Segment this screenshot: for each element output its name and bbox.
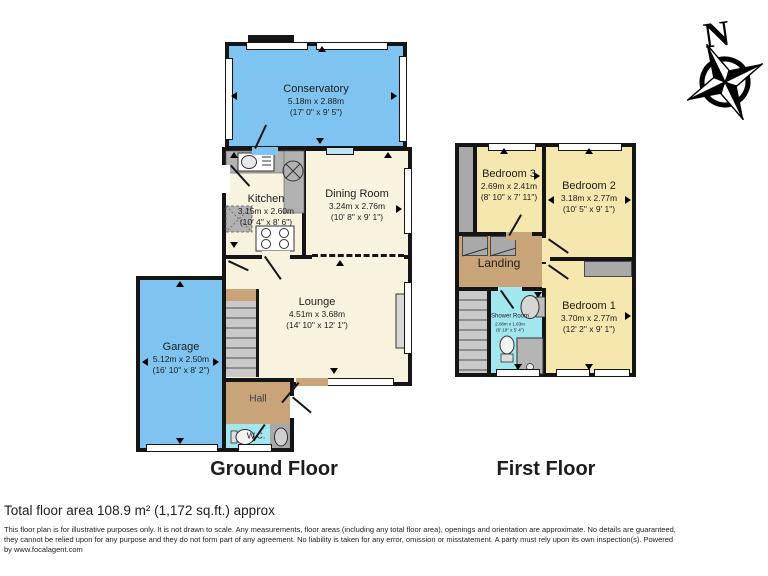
wall-marker-icon [230, 152, 238, 158]
window [496, 369, 540, 377]
eaves-store-block [459, 147, 474, 232]
wall-marker-icon [230, 242, 238, 248]
room-name: Bedroom 1 [561, 299, 617, 313]
window [404, 168, 412, 234]
disclaimer-line: This floor plan is for illustrative purp… [4, 525, 676, 535]
landing-cupboard [462, 236, 488, 256]
room-name: Lounge [286, 295, 348, 309]
window [399, 56, 407, 142]
room-name: Bedroom 2 [561, 179, 617, 193]
wall-marker-icon [625, 196, 631, 204]
room-dims-imperial: (10' 4" x 8' 6") [238, 217, 294, 228]
wall-marker-icon [625, 312, 631, 320]
ground-floor-title: Ground Floor [210, 458, 338, 481]
wall-marker-icon [548, 196, 554, 204]
room-name: Bedroom 3 [481, 167, 537, 181]
wall-marker-icon [213, 358, 219, 366]
room-dims-imperial: (16' 10" x 8' 2") [152, 365, 209, 376]
room-dims-imperial: (8' 10" x 7' 11") [481, 192, 537, 203]
label-lounge: Lounge 4.51m x 3.68m (14' 10" x 12' 1") [286, 295, 348, 331]
room-dims-metric: 2.08m x 1.63m [491, 321, 529, 327]
room-name: Shower Room [491, 313, 529, 321]
room-dims-imperial: (12' 2" x 9' 1") [561, 324, 617, 335]
wall-marker-icon [500, 148, 508, 154]
stairs-first [459, 291, 487, 373]
window [238, 444, 272, 452]
wall-marker-icon [318, 46, 326, 52]
room-dims-metric: 5.18m x 2.88m [283, 96, 348, 107]
wall-marker-icon [316, 138, 324, 144]
window [556, 369, 590, 377]
label-garage: Garage 5.12m x 2.50m (16' 10" x 8' 2") [152, 340, 209, 376]
room-name: Conservatory [283, 82, 348, 96]
first-floor-title: First Floor [497, 458, 596, 481]
total-floor-area-text: Total floor area 108.9 m² (1,172 sq.ft.)… [4, 503, 275, 518]
room-dims-imperial: (17' 0" x 9' 5") [283, 107, 348, 118]
compass-rose-icon: N [682, 12, 766, 120]
room-dims-imperial: (6' 10" x 5' 4") [491, 327, 529, 333]
room-name: Dining Room [325, 187, 389, 201]
room-dims-metric: 3.70m x 2.77m [561, 313, 617, 324]
room-dims-imperial: (10' 5" x 9' 1") [561, 204, 617, 215]
label-hall: Hall [249, 393, 266, 406]
dashed-opening-line [312, 254, 404, 257]
label-shower-room: Shower Room 2.08m x 1.63m (6' 10" x 5' 4… [491, 313, 529, 332]
wc-vanity-block [270, 424, 290, 448]
room-dims-imperial: (10' 8" x 9' 1") [325, 212, 389, 223]
wall-marker-icon [142, 358, 148, 366]
wall-marker-icon [585, 364, 593, 370]
garage-door [146, 444, 218, 452]
bedroom1-wardrobe [584, 261, 632, 277]
wall-marker-icon [534, 292, 542, 298]
wall-marker-icon [330, 368, 338, 374]
room-name: Kitchen [238, 192, 294, 206]
room-name: Garage [152, 340, 209, 354]
window [316, 42, 388, 50]
room-dims-metric: 3.18m x 2.77m [561, 193, 617, 204]
wall-marker-icon [176, 281, 184, 287]
wall-marker-icon [176, 438, 184, 444]
wall-marker-icon [514, 364, 522, 370]
disclaimer-line: by www.focalagent.com [4, 545, 83, 555]
label-conservatory: Conservatory 5.18m x 2.88m (17' 0" x 9' … [283, 82, 348, 118]
label-landing: Landing [478, 256, 521, 272]
wall-marker-icon [384, 152, 392, 158]
stairs-ground-landing-cap [226, 289, 256, 301]
wall-marker-icon [396, 205, 402, 213]
wall-marker-icon [585, 148, 593, 154]
room-dims-metric: 3.24m x 2.76m [325, 201, 389, 212]
label-wc: W.C. [247, 430, 265, 441]
door-opening [542, 264, 550, 288]
wall-marker-icon [231, 92, 237, 100]
label-bedroom1: Bedroom 1 3.70m x 2.77m (12' 2" x 9' 1") [561, 299, 617, 335]
wall-marker-icon [336, 260, 344, 266]
compass-north-label: N [701, 13, 732, 56]
label-kitchen: Kitchen 3.15m x 2.60m (10' 4" x 8' 6") [238, 192, 294, 228]
door-opening [296, 378, 328, 386]
room-dims-imperial: (14' 10" x 12' 1") [286, 320, 348, 331]
door-opening [222, 165, 230, 193]
label-dining-room: Dining Room 3.24m x 2.76m (10' 8" x 9' 1… [325, 187, 389, 223]
window [488, 143, 536, 151]
door-opening [542, 238, 550, 262]
label-bedroom2: Bedroom 2 3.18m x 2.77m (10' 5" x 9' 1") [561, 179, 617, 215]
window [246, 42, 308, 50]
room-dims-metric: 3.15m x 2.60m [238, 206, 294, 217]
window [404, 282, 412, 354]
room-dims-metric: 4.51m x 3.68m [286, 309, 348, 320]
label-bedroom3: Bedroom 3 2.69m x 2.41m (8' 10" x 7' 11"… [481, 167, 537, 203]
room-dims-metric: 5.12m x 2.50m [152, 354, 209, 365]
window [594, 369, 630, 377]
internal-window [326, 147, 354, 155]
disclaimer-line: they cannot be relied upon for any purpo… [4, 535, 673, 545]
room-dims-metric: 2.69m x 2.41m [481, 181, 537, 192]
wall-marker-icon [391, 92, 397, 100]
stairs-ground [226, 289, 259, 377]
